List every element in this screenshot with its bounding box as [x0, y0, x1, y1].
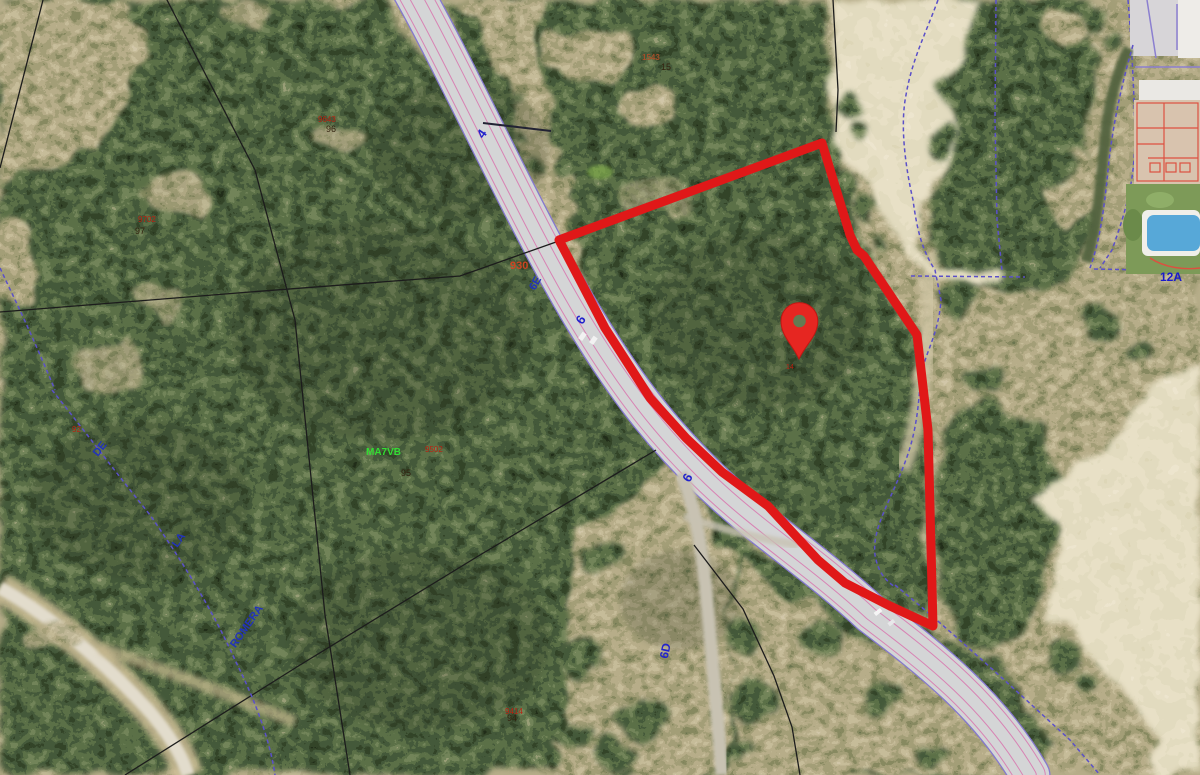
svg-text:930: 930 — [510, 260, 528, 272]
svg-text:9502: 9502 — [425, 445, 443, 454]
svg-text:9643: 9643 — [318, 115, 336, 124]
svg-text:94: 94 — [507, 713, 517, 723]
svg-text:92: 92 — [72, 425, 81, 434]
svg-text:97: 97 — [135, 226, 145, 236]
svg-text:96: 96 — [326, 124, 336, 134]
svg-text:12A: 12A — [1160, 270, 1182, 284]
svg-text:1543: 1543 — [642, 53, 660, 62]
svg-text:MA7VB: MA7VB — [366, 447, 401, 458]
svg-text:15: 15 — [661, 62, 671, 72]
svg-text:14: 14 — [786, 364, 794, 371]
svg-text:9702: 9702 — [138, 215, 156, 224]
svg-text:95: 95 — [401, 468, 411, 478]
